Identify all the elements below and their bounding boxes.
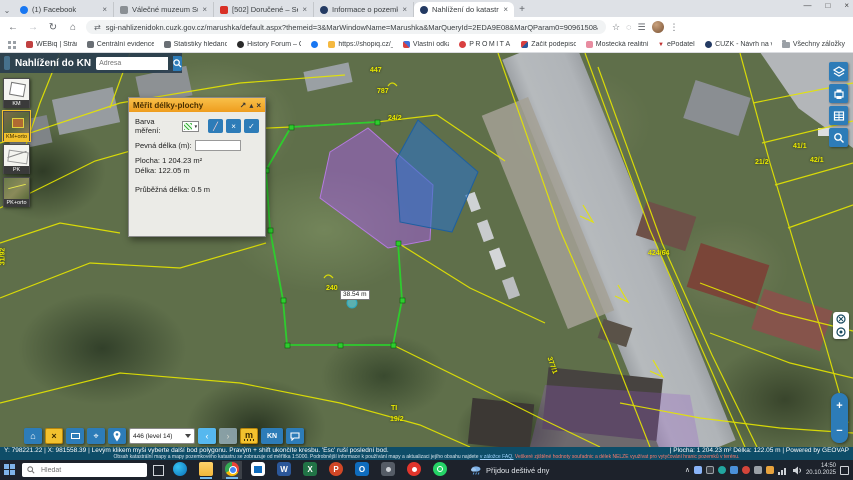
tray-icon-5[interactable] xyxy=(742,466,750,474)
pen-icon: ╱ xyxy=(213,122,218,131)
url-text[interactable]: sgi-nahlizenidokn.cuzk.gov.cz/marushka/d… xyxy=(106,23,598,32)
bookmark-label: PROMÍTÁNÍ xyxy=(469,41,511,48)
bookmark-webiq[interactable]: WEBiq | Stránky xyxy=(26,41,77,48)
people-icon xyxy=(381,462,395,476)
microsoft-store-icon xyxy=(251,462,265,476)
funnel-icon: ▼ xyxy=(658,42,664,48)
bookmark-favicon xyxy=(521,41,528,48)
table-icon xyxy=(833,110,845,122)
parcel-label: 24/2 xyxy=(388,115,402,122)
disclaimer-warning: Veškeré zjištěné hodnoty souřadnic a dél… xyxy=(515,454,740,460)
file-explorer-icon xyxy=(199,462,213,476)
speech-bubble-icon xyxy=(290,432,300,441)
bookmark-label: Statistiky hledanost... xyxy=(174,41,228,48)
home-extent-button[interactable]: ⌂ xyxy=(24,428,42,444)
parcel-label: 787 xyxy=(377,88,389,95)
cursor-coordinates: Y: 798221.22 | X: 981558.39 | xyxy=(4,447,90,454)
bookmark-favicon xyxy=(26,41,33,48)
km-layer-icon xyxy=(4,79,29,100)
dialog-popout-icon[interactable]: ↗ xyxy=(240,101,247,110)
map-pin-icon xyxy=(113,431,121,442)
bookmark-favicon xyxy=(237,41,244,48)
bookmark-mostecka[interactable]: Mostecká realitní a... xyxy=(586,41,648,48)
map-status-bar: Y: 798221.22 | X: 981558.39 | Levým klik… xyxy=(0,447,853,460)
zoom-level-value: 446 (level 14) xyxy=(133,433,172,440)
tab-facebook[interactable]: (1) Facebook × xyxy=(14,2,114,17)
onedrive-icon[interactable] xyxy=(754,466,762,474)
excel-icon: X xyxy=(303,462,317,476)
measure-m-label: m xyxy=(245,432,253,439)
parcel-label: 21/2 xyxy=(755,159,769,166)
fixed-length-label: Pevná délka (m): xyxy=(135,141,192,150)
layer-label: PK+orto xyxy=(4,199,29,207)
tray-chevron-icon[interactable]: ∧ xyxy=(685,466,690,474)
zoom-in-button[interactable]: + xyxy=(831,393,848,418)
rain-cloud-icon xyxy=(470,465,482,475)
zoom-rectangle-button[interactable] xyxy=(66,428,84,444)
reload-button[interactable]: ↻ xyxy=(46,22,60,33)
zoom-out-button[interactable]: − xyxy=(831,418,848,443)
taskbar-search-input[interactable] xyxy=(39,466,129,475)
folder-icon xyxy=(782,42,790,48)
tray-icon-2[interactable] xyxy=(706,466,714,474)
layers-button[interactable] xyxy=(829,62,848,81)
cuzk-favicon xyxy=(320,6,328,14)
feedback-button[interactable] xyxy=(286,428,304,444)
layer-button-km[interactable]: KM xyxy=(3,78,30,108)
legend-table-button[interactable] xyxy=(829,106,848,125)
bookmark-facebook-icon[interactable] xyxy=(311,41,318,48)
measured-area: Plocha: 1 204.23 m² xyxy=(135,156,259,166)
taskbar-weather[interactable]: Přijdou deštivé dny xyxy=(470,465,549,475)
parcel-label: 240 xyxy=(326,285,338,292)
tab-close-icon[interactable]: × xyxy=(503,5,508,14)
record-app-icon xyxy=(407,462,421,476)
taskbar-app-excel[interactable]: X xyxy=(300,461,320,479)
pk-orto-layer-icon xyxy=(4,178,29,199)
dialog-collapse-icon[interactable]: ▴ xyxy=(249,101,253,110)
zoom-control: + − xyxy=(831,393,848,443)
site-info-icon[interactable]: ⇄ xyxy=(94,23,101,32)
tray-icon-1[interactable] xyxy=(694,466,702,474)
search-icon xyxy=(173,59,182,68)
taskbar-app-chrome[interactable] xyxy=(222,461,242,479)
fixed-length-input[interactable] xyxy=(195,140,241,151)
tab-title: Informace o pozemku | Nahlíž... xyxy=(332,5,398,14)
bookmark-label: Vlastní odkazy xyxy=(413,41,449,48)
whatsapp-icon xyxy=(433,462,447,476)
bookmark-promitani[interactable]: PROMÍTÁNÍ xyxy=(459,41,511,48)
layer-button-km-orto[interactable]: KM+orto xyxy=(3,111,30,141)
volume-icon[interactable] xyxy=(792,466,802,475)
bookmark-favicon xyxy=(403,41,410,48)
taskbar-app-store[interactable] xyxy=(248,461,268,479)
print-icon xyxy=(833,88,845,100)
rectangle-icon xyxy=(71,433,80,439)
close-button[interactable]: × xyxy=(844,1,849,10)
search-button[interactable] xyxy=(173,56,182,71)
bookmark-vlastni-odkazy[interactable]: Vlastní odkazy xyxy=(403,41,449,48)
apply-measure-button[interactable]: ✓ xyxy=(244,119,259,133)
word-icon: W xyxy=(277,462,291,476)
measure-dialog-titlebar[interactable]: Měřit délky-plochy ↗ ▴ × xyxy=(129,98,265,112)
edge-icon xyxy=(173,462,187,476)
tray-icon-4[interactable] xyxy=(730,466,738,474)
bookmark-favicon xyxy=(164,41,171,48)
taskbar-app-people[interactable] xyxy=(378,461,398,479)
tab-title: (1) Facebook xyxy=(32,5,98,14)
map-mini-controls xyxy=(833,312,849,339)
bookmark-favicon xyxy=(328,41,335,48)
draw-measure-button[interactable]: ╱ xyxy=(208,119,223,133)
browser-tab-strip: ⌄ (1) Facebook × Válečné muzeum Sudety ×… xyxy=(0,0,853,17)
taskbar-app-whatsapp[interactable] xyxy=(430,461,450,479)
tab-pozemek-info[interactable]: Informace o pozemku | Nahlíž... × xyxy=(314,2,414,17)
taskbar-app-word[interactable]: W xyxy=(274,461,294,479)
clock-date: 20.10.2025 xyxy=(806,470,836,476)
bookmark-podepisovat[interactable]: Začít podepisovat xyxy=(521,41,575,48)
bookmark-favicon xyxy=(459,41,466,48)
parcel-label: 41/1 xyxy=(793,143,807,150)
outlook-icon: O xyxy=(355,462,369,476)
forward-button[interactable]: → xyxy=(26,22,40,33)
cancel-measure-button[interactable]: × xyxy=(226,119,241,133)
bookmark-history-forum[interactable]: History Forum – Ob... xyxy=(237,41,301,48)
notification-center-icon[interactable] xyxy=(840,466,849,475)
kn-info-button[interactable]: KN xyxy=(261,428,283,444)
tab-title: Nahlížení do katastru nemovit... xyxy=(432,5,499,14)
parcel-label: 42/1 xyxy=(810,157,824,164)
cuzk-favicon xyxy=(420,6,428,14)
clear-selection-button[interactable]: × xyxy=(45,428,63,444)
bookmark-label: WEBiq | Stránky xyxy=(36,41,77,48)
minimize-button[interactable]: — xyxy=(803,1,811,10)
bookmark-label: Mostecká realitní a... xyxy=(596,41,648,48)
selected-parcel-wash xyxy=(530,385,700,447)
bookmark-cuzk-navrh[interactable]: ČÚZK - Návrh na vkl... xyxy=(705,41,772,48)
bookmark-label: ePodatelna xyxy=(667,41,695,48)
reading-list-icon[interactable]: ☰ xyxy=(637,22,645,33)
layer-label: KM xyxy=(4,100,29,108)
back-button[interactable]: ← xyxy=(6,22,20,33)
bookmark-label: ČÚZK - Návrh na vkl... xyxy=(715,41,772,48)
parcel-label: 31/92 xyxy=(0,248,6,266)
measured-length: Délka: 122.05 m xyxy=(135,166,259,176)
tab-close-icon[interactable]: × xyxy=(202,5,207,14)
tab-title: Válečné muzeum Sudety xyxy=(132,5,198,14)
pin-button[interactable] xyxy=(108,428,126,444)
tab-search-chevron-icon[interactable]: ⌄ xyxy=(0,3,14,17)
bookmark-statistiky[interactable]: Statistiky hledanost... xyxy=(164,41,228,48)
maximize-button[interactable]: □ xyxy=(825,1,830,10)
bookmark-centralni-evidence[interactable]: Centrální evidence e... xyxy=(87,41,154,48)
layer-label: PK xyxy=(4,166,29,174)
history-forward-button[interactable]: › xyxy=(219,428,237,444)
facebook-favicon xyxy=(20,6,28,14)
map-tools-column xyxy=(829,62,848,147)
defender-icon[interactable] xyxy=(766,466,774,474)
taskbar-app-record[interactable] xyxy=(404,461,424,479)
magnifier-icon xyxy=(833,132,845,144)
window-controls: — □ × xyxy=(803,1,849,10)
apps-grid-icon[interactable] xyxy=(8,41,16,49)
tab-email[interactable]: [502] Doručené – Seznam Email × xyxy=(214,2,314,17)
taskbar-app-powerpoint[interactable]: P xyxy=(326,461,346,479)
start-button[interactable] xyxy=(4,464,16,476)
bookmark-label: Centrální evidence e... xyxy=(97,41,154,48)
bookmark-favicon xyxy=(705,41,712,48)
tab-close-icon[interactable]: × xyxy=(402,5,407,14)
disclaimer-text: Obsah katastrální mapy a mapy pozemkovéh… xyxy=(114,454,479,460)
parcel-label: 424/64 xyxy=(648,250,669,257)
app-header: Nahlížení do KN xyxy=(0,53,182,73)
tab-nahlizeni-active[interactable]: Nahlížení do katastru nemovit... × xyxy=(414,2,514,17)
browser-menu-icon[interactable]: ⋮ xyxy=(670,22,679,33)
running-length: Průběžná délka: 0.5 m xyxy=(135,185,259,195)
search-icon xyxy=(27,466,35,474)
zoom-search-button[interactable] xyxy=(829,128,848,147)
taskbar-search[interactable] xyxy=(22,463,147,477)
measure-length-label: 38.54 m xyxy=(340,290,370,300)
tray-icon-3[interactable] xyxy=(718,466,726,474)
address-bar[interactable]: ⇄ sgi-nahlizenidokn.cuzk.gov.cz/marushka… xyxy=(86,20,606,34)
chevron-down-icon xyxy=(185,434,191,438)
screen: ⌄ (1) Facebook × Válečné muzeum Sudety ×… xyxy=(0,0,853,480)
locate-icon[interactable] xyxy=(836,327,846,337)
center-target-button[interactable]: ⌖ xyxy=(87,428,105,444)
taskbar-clock[interactable]: 14:50 20.10.2025 xyxy=(806,463,836,477)
clear-selection-icon[interactable] xyxy=(836,314,846,324)
network-icon[interactable] xyxy=(778,466,788,475)
bookmark-star-icon[interactable]: ☆ xyxy=(612,22,620,33)
extensions-icon[interactable]: ◌ xyxy=(626,22,631,32)
parcel-label: TI xyxy=(391,405,397,412)
measure-color-dropdown[interactable]: ▼ xyxy=(182,121,199,132)
tab-close-icon[interactable]: × xyxy=(102,5,107,14)
bookmark-favicon xyxy=(586,41,593,48)
taskbar-app-edge[interactable] xyxy=(170,461,190,479)
selected-building-blue[interactable] xyxy=(396,120,478,232)
bookmark-shopiq[interactable]: https://shopiq.cz/_si... xyxy=(328,41,393,48)
disclaimer-link[interactable]: v záložce FAQ. xyxy=(480,454,514,460)
map-bottom-toolbar: ⌂ × ⌖ 446 (level 14) ‹ › m KN xyxy=(24,428,304,444)
all-bookmarks-button[interactable]: Všechny záložky xyxy=(782,41,845,48)
bookmark-favicon xyxy=(87,41,94,48)
all-bookmarks-label: Všechny záložky xyxy=(793,41,845,48)
layers-icon xyxy=(833,66,845,78)
chrome-icon xyxy=(225,462,239,476)
menu-hamburger-icon[interactable] xyxy=(4,56,10,70)
clock-time: 14:50 xyxy=(821,463,836,469)
layer-button-pk[interactable]: PK xyxy=(3,144,30,174)
bookmark-label: History Forum – Ob... xyxy=(247,41,301,48)
email-favicon xyxy=(220,6,228,14)
tab-title: [502] Doručené – Seznam Email xyxy=(232,5,298,14)
pk-layer-icon xyxy=(4,145,29,166)
museum-favicon xyxy=(120,6,128,14)
address-search-input[interactable] xyxy=(96,57,168,70)
app-title: Nahlížení do KN xyxy=(15,58,91,69)
task-view-button[interactable] xyxy=(153,465,164,476)
dialog-title: Měřit délky-plochy xyxy=(133,101,203,110)
km-orto-layer-icon xyxy=(4,112,29,133)
color-label: Barva měření: xyxy=(135,117,179,135)
tab-museum[interactable]: Válečné muzeum Sudety × xyxy=(114,2,214,17)
measure-tool-button[interactable]: m xyxy=(240,428,258,444)
print-button[interactable] xyxy=(829,84,848,103)
layer-label: KM+orto xyxy=(4,133,29,141)
powered-by: Powered by GEOVAP xyxy=(786,447,849,454)
system-tray: ∧ 14:50 20.10.2025 xyxy=(685,463,849,477)
bookmarks-bar: WEBiq | Stránky Centrální evidence e... … xyxy=(0,37,853,53)
bookmark-label: Začít podepisovat xyxy=(531,41,575,48)
home-button[interactable]: ⌂ xyxy=(66,22,80,33)
ruler-icon xyxy=(244,439,254,441)
profile-avatar[interactable] xyxy=(652,21,664,33)
weather-text: Přijdou deštivé dny xyxy=(486,466,549,475)
taskbar-app-outlook[interactable]: O xyxy=(352,461,372,479)
layer-button-pk-orto[interactable]: PK+orto xyxy=(3,177,30,207)
parcel-label: 447 xyxy=(370,67,382,74)
bookmark-label: https://shopiq.cz/_si... xyxy=(338,41,393,48)
windows-taskbar: W X P O Přijdou deštivé dny ∧ 14:50 20.1… xyxy=(0,460,853,480)
zoom-level-dropdown[interactable]: 446 (level 14) xyxy=(129,428,195,444)
bookmark-epodatelna[interactable]: ▼ePodatelna xyxy=(658,41,695,48)
measure-dialog: Měřit délky-plochy ↗ ▴ × Barva měření: ▼… xyxy=(128,97,266,237)
dialog-close-icon[interactable]: × xyxy=(256,101,261,110)
history-back-button[interactable]: ‹ xyxy=(198,428,216,444)
browser-toolbar: ← → ↻ ⌂ ⇄ sgi-nahlizenidokn.cuzk.gov.cz/… xyxy=(0,17,853,37)
new-tab-button[interactable]: + xyxy=(514,2,530,17)
powerpoint-icon: P xyxy=(329,462,343,476)
parcel-label: 19/2 xyxy=(390,416,404,423)
taskbar-app-explorer[interactable] xyxy=(196,461,216,479)
tab-close-icon[interactable]: × xyxy=(302,5,307,14)
